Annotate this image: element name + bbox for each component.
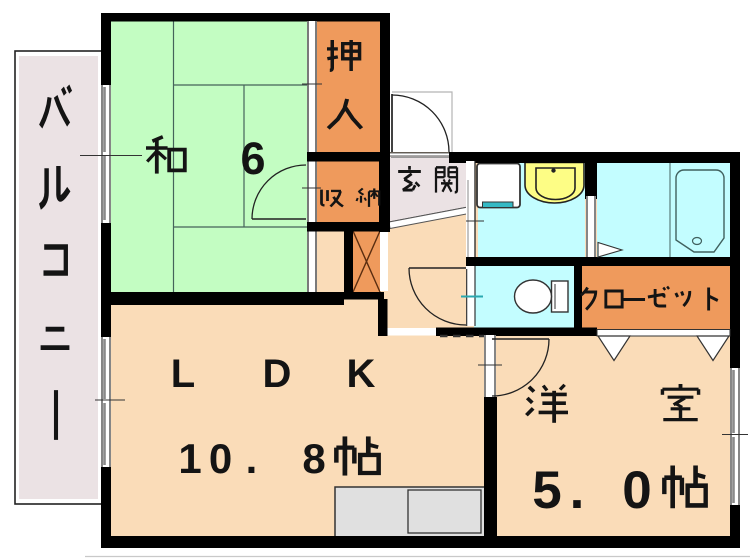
svg-text:D: D [263, 352, 292, 396]
svg-text:.: . [570, 461, 585, 520]
svg-text:0: 0 [622, 461, 651, 520]
svg-text:8: 8 [302, 435, 325, 482]
svg-text:.: . [246, 435, 258, 482]
svg-text:6: 6 [240, 133, 265, 184]
svg-text:0: 0 [209, 435, 232, 482]
svg-text:5: 5 [532, 461, 561, 520]
svg-text:L: L [171, 352, 195, 396]
svg-text:1: 1 [178, 435, 201, 482]
svg-text:K: K [347, 352, 376, 396]
